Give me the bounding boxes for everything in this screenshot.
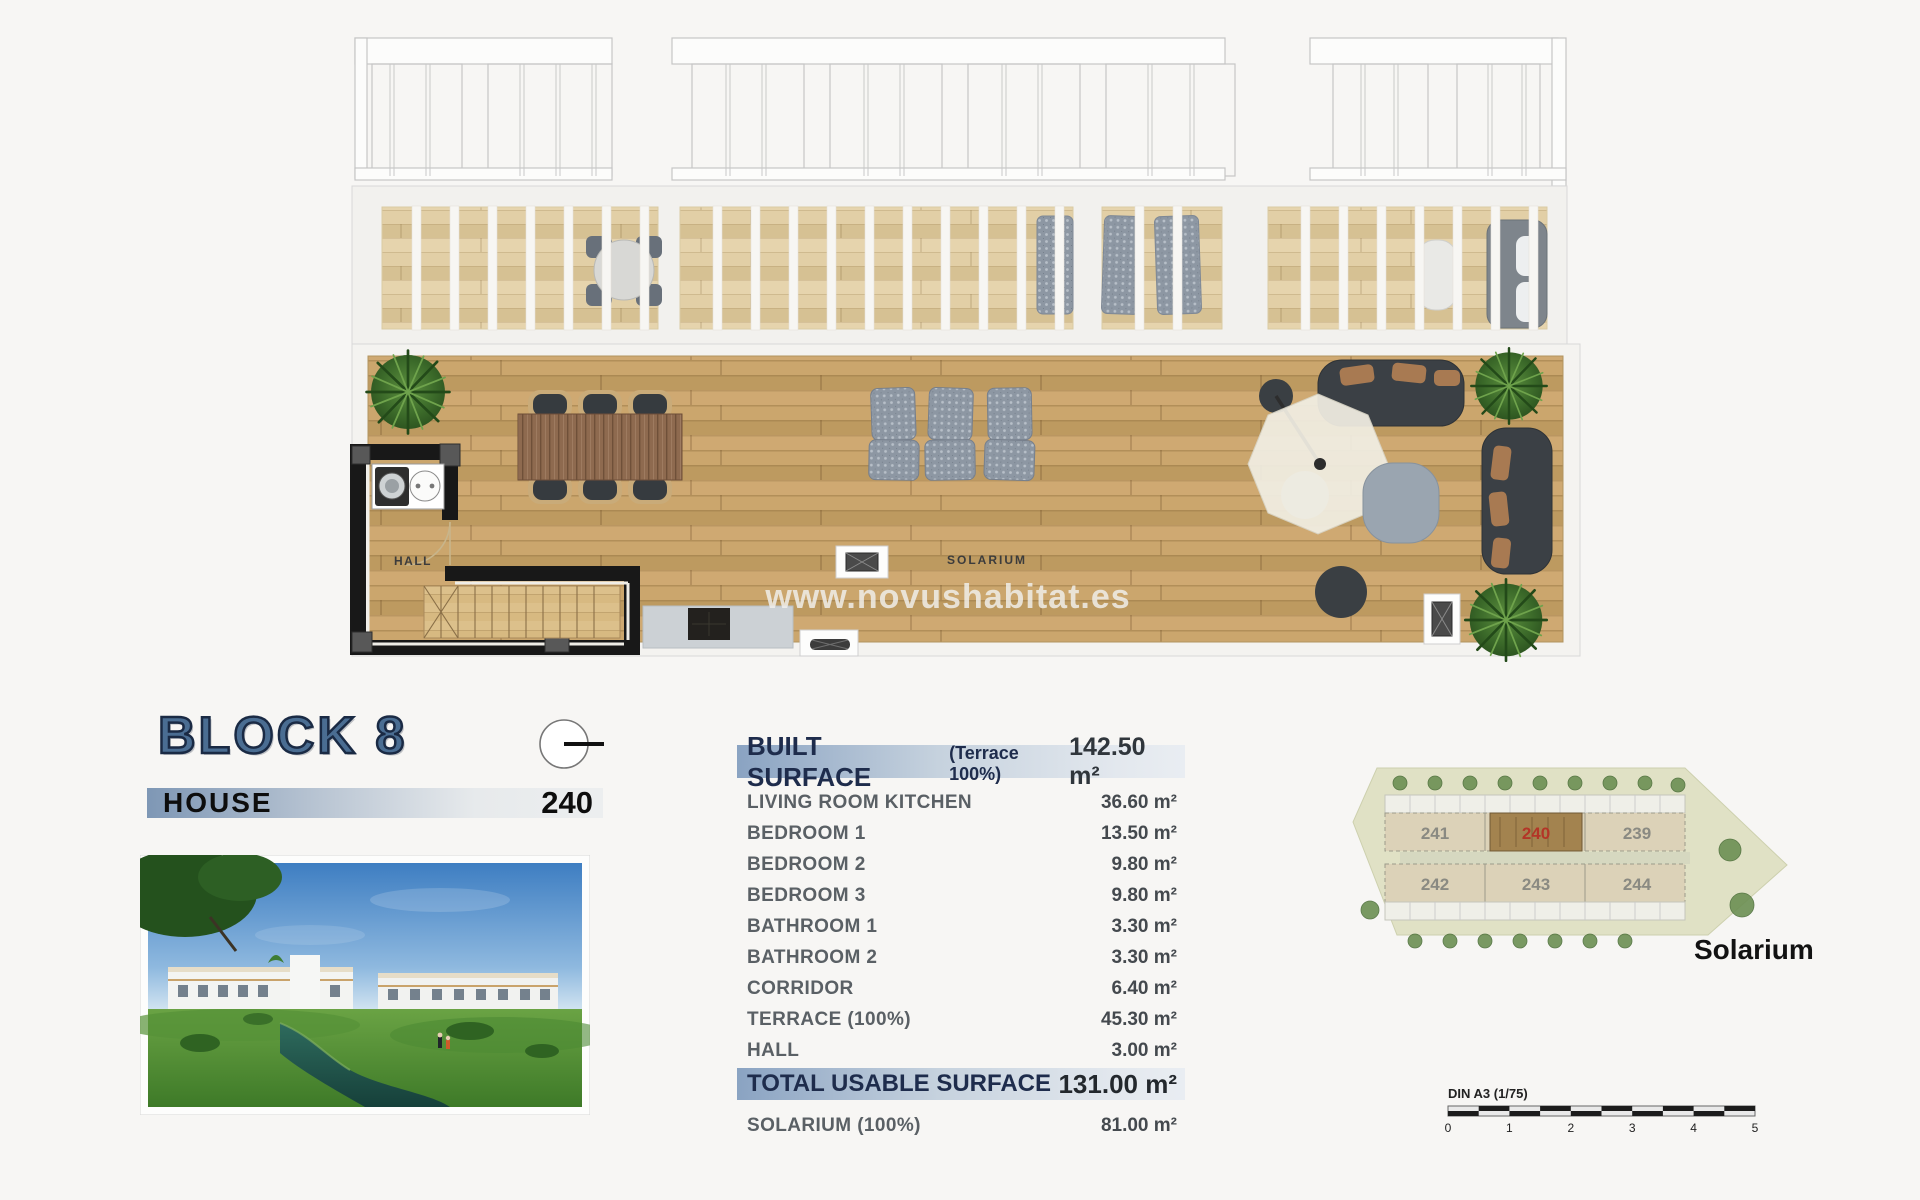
- table-row: LIVING ROOM KITCHEN 36.60 m²: [737, 787, 1185, 818]
- total-label: TOTAL USABLE SURFACE: [737, 1070, 1051, 1098]
- terrace-round-table: [586, 236, 662, 306]
- row-label: BEDROOM 1: [737, 823, 866, 845]
- sun-loungers: [865, 387, 1035, 482]
- table-row: HALL 3.00 m²: [737, 1035, 1185, 1066]
- plant: [1471, 348, 1546, 423]
- row-value: 13.50 m²: [1101, 823, 1185, 845]
- table-row: BATHROOM 1 3.30 m²: [737, 911, 1185, 942]
- built-surface-header: BUILT SURFACE (Terrace 100%) 142.50 m²: [737, 745, 1185, 778]
- plant: [367, 351, 450, 434]
- row-label: LIVING ROOM KITCHEN: [737, 792, 972, 814]
- scale-ticks: 0 1 2 3 4 5: [1445, 1121, 1759, 1135]
- scale-tick: 0: [1445, 1121, 1452, 1135]
- house-label: HOUSE: [147, 787, 273, 819]
- total-value: 131.00 m²: [1058, 1069, 1185, 1100]
- row-label: BATHROOM 2: [737, 947, 877, 969]
- sink: [410, 471, 440, 501]
- site-unit-number-highlighted: 240: [1522, 824, 1550, 843]
- row-label: BATHROOM 1: [737, 916, 877, 938]
- dining-set: [518, 390, 682, 504]
- row-value: 3.30 m²: [1112, 947, 1185, 969]
- site-building-top: 241 240 239: [1385, 795, 1685, 851]
- floor-plan: HALL SOLARIUM www.novushabitat.es: [0, 0, 1920, 700]
- table-row: BEDROOM 1 13.50 m²: [737, 818, 1185, 849]
- table-row: CORRIDOR 6.40 m²: [737, 973, 1185, 1004]
- post: [352, 446, 370, 464]
- pergola-posts: [390, 64, 1526, 176]
- post: [440, 444, 460, 466]
- block-title: BLOCK 8: [158, 706, 407, 766]
- plan-sheet: HALL SOLARIUM www.novushabitat.es BLOCK …: [0, 0, 1920, 1200]
- north-indicator-icon: [538, 718, 610, 772]
- house-number: 240: [541, 785, 603, 821]
- residence-photo: [140, 855, 590, 1115]
- row-value: 9.80 m²: [1112, 854, 1185, 876]
- laundry-unit: [372, 464, 444, 509]
- row-value: 81.00 m²: [1101, 1115, 1185, 1137]
- site-plan-caption: Solarium: [1694, 934, 1814, 966]
- hall-label: HALL: [394, 554, 432, 568]
- table-row: BATHROOM 2 3.30 m²: [737, 942, 1185, 973]
- site-building-bottom: 242 243 244: [1385, 864, 1685, 920]
- surface-rows: LIVING ROOM KITCHEN 36.60 m² BEDROOM 1 1…: [737, 787, 1185, 1066]
- row-value: 45.30 m²: [1101, 1009, 1185, 1031]
- row-value: 9.80 m²: [1112, 885, 1185, 907]
- scale-tick: 2: [1567, 1121, 1574, 1135]
- site-unit-number: 242: [1421, 875, 1449, 894]
- pergola-terrace-band: [352, 186, 1567, 344]
- row-label: BEDROOM 2: [737, 854, 866, 876]
- row-label: CORRIDOR: [737, 978, 854, 1000]
- row-value: 36.60 m²: [1101, 792, 1185, 814]
- scale-tick: 1: [1506, 1121, 1513, 1135]
- bean-pouf: [1363, 463, 1439, 543]
- row-label: SOLARIUM (100%): [737, 1115, 921, 1137]
- row-label: HALL: [737, 1040, 799, 1062]
- plant: [1465, 579, 1546, 660]
- scale-label: DIN A3 (1/75): [1448, 1086, 1528, 1101]
- row-value: 3.30 m²: [1112, 916, 1185, 938]
- solarium-deck: HALL SOLARIUM www.novushabitat.es: [350, 344, 1580, 661]
- built-surface-label: BUILT SURFACE: [737, 731, 942, 793]
- row-value: 3.00 m²: [1112, 1040, 1185, 1062]
- solarium-label: SOLARIUM: [947, 553, 1027, 567]
- site-unit-number: 244: [1623, 875, 1652, 894]
- solarium-row: SOLARIUM (100%) 81.00 m²: [737, 1113, 1185, 1139]
- table-row: TERRACE (100%) 45.30 m²: [737, 1004, 1185, 1035]
- built-surface-value: 142.50 m²: [1069, 733, 1185, 791]
- site-unit-number: 243: [1522, 875, 1550, 894]
- scale-tick: 3: [1629, 1121, 1636, 1135]
- table-row: BEDROOM 3 9.80 m²: [737, 880, 1185, 911]
- watermark: www.novushabitat.es: [764, 578, 1130, 616]
- dining-table: [518, 414, 682, 480]
- staircase: [424, 586, 620, 638]
- sofa-right: [1482, 428, 1552, 574]
- skylight: [836, 546, 888, 578]
- scale-tick: 4: [1690, 1121, 1697, 1135]
- surface-table: BUILT SURFACE (Terrace 100%) 142.50 m² L…: [737, 745, 1185, 1139]
- site-unit-number: 239: [1623, 824, 1651, 843]
- house-bar: HOUSE 240: [147, 788, 603, 818]
- round-pouf: [1315, 566, 1367, 618]
- row-label: TERRACE (100%): [737, 1009, 911, 1031]
- skylight: [1424, 594, 1460, 644]
- bottom-table: [800, 630, 858, 656]
- post: [352, 632, 372, 652]
- pergola-roof-outline: [355, 38, 1566, 186]
- scale-tick: 5: [1752, 1121, 1759, 1135]
- total-usable-bar: TOTAL USABLE SURFACE 131.00 m²: [737, 1068, 1185, 1100]
- site-unit-number: 241: [1421, 824, 1449, 843]
- terrace-note: (Terrace 100%): [949, 739, 1069, 785]
- row-value: 6.40 m²: [1112, 978, 1185, 1000]
- scale-bar: DIN A3 (1/75) 0 1 2 3 4 5: [1440, 1080, 1770, 1140]
- row-label: BEDROOM 3: [737, 885, 866, 907]
- table-row: BEDROOM 2 9.80 m²: [737, 849, 1185, 880]
